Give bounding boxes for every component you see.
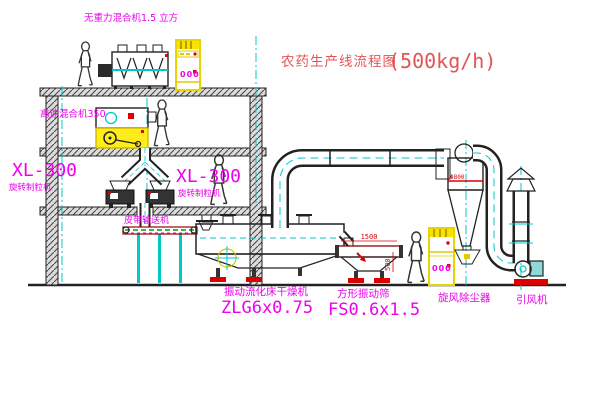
cad-canvas: 000 — [0, 0, 600, 403]
panel-display-ground: 000 — [432, 264, 452, 273]
floor2-slab-right — [153, 207, 266, 215]
label-sieve-name: 方形振动筛 — [337, 287, 390, 300]
label-cyclone: 旋风除尘器 — [438, 291, 491, 304]
label-dryer-model: ZLG6x0.75 — [221, 298, 313, 318]
dim-sieve-height: 500 — [384, 258, 392, 271]
dim-cyclone: Φ800 — [450, 174, 465, 181]
control-cabinet-ground: 000 — [429, 228, 454, 285]
induced-draft-fan — [514, 261, 548, 285]
drawing-title: 农药生产线流程图 — [281, 54, 397, 70]
process-flow-drawing: 000 — [0, 0, 600, 403]
panel-display-roof: 000 — [180, 70, 200, 79]
belt-conveyor — [123, 227, 197, 283]
label-high-speed-mixer: 高速混合机350 — [40, 108, 106, 120]
label-granulator-left-name: 旋转制粒机 — [9, 182, 52, 193]
floor3-slab — [40, 148, 266, 156]
worker-ground — [408, 232, 424, 282]
roof-slab — [40, 88, 266, 96]
label-granulator-right-name: 旋转制粒机 — [178, 188, 221, 199]
gravity-free-mixer — [98, 45, 168, 89]
dim-sieve-length: 1500 — [361, 233, 378, 241]
label-gravity-mixer: 无重力混合机1.5 立方 — [84, 12, 178, 24]
dryer-discharge-spout — [342, 234, 353, 246]
worker-floor3 — [154, 100, 169, 146]
label-sieve-model: FS0.6x1.5 — [328, 300, 420, 320]
exhaust-stack — [507, 168, 535, 263]
control-cabinet-roof: 000 — [176, 40, 200, 90]
granulator-left — [106, 181, 134, 208]
drawing-title-capacity: (500kg/h) — [388, 49, 496, 73]
worker-roof — [78, 42, 92, 86]
label-granulator-right-model: XL-300 — [176, 166, 241, 187]
label-belt-conveyor: 皮带输送机 — [124, 214, 169, 226]
dryer-inlet-hopper — [196, 215, 218, 230]
label-dryer-name: 振动流化床干燥机 — [224, 285, 308, 298]
label-fan: 引风机 — [516, 293, 548, 306]
label-granulator-left-model: XL-300 — [12, 160, 77, 181]
fluid-bed-dryer — [196, 215, 344, 282]
vibrating-sieve — [335, 241, 403, 283]
